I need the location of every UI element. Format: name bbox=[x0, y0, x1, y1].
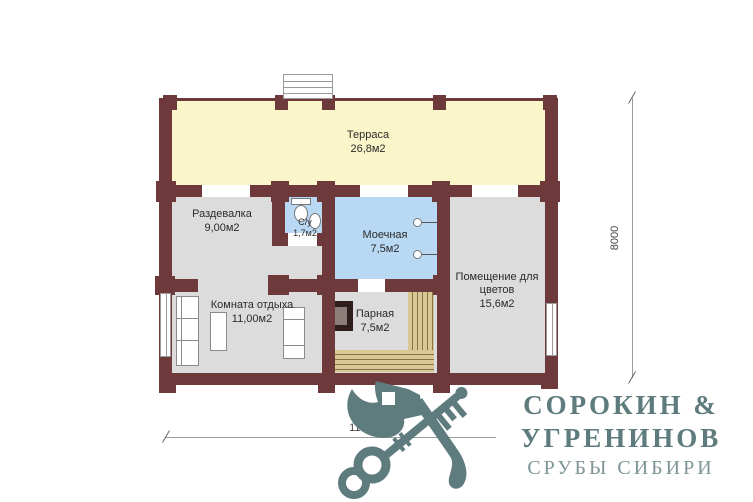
log-post bbox=[317, 181, 335, 202]
room-name: Моечная bbox=[335, 229, 435, 242]
door-steam-room bbox=[358, 279, 385, 292]
company-logo: СОРОКИН & УГРЕНИНОВ СРУБЫ СИБИРИ bbox=[496, 389, 746, 481]
sofa bbox=[176, 296, 199, 366]
room-name: Парная bbox=[335, 308, 415, 321]
floor-plan-page: Терраса 26,8м2 Раздевалка 9,00м2 С/у 1,7… bbox=[0, 0, 753, 502]
shower-arm-icon bbox=[421, 222, 437, 223]
opening-terrace-washing bbox=[360, 185, 408, 197]
log-post bbox=[540, 181, 560, 202]
room-area: 7,5м2 bbox=[335, 243, 435, 256]
room-label-flowers: Помещение для цветов 15,6м2 bbox=[447, 271, 547, 311]
room-area: 15,6м2 bbox=[447, 298, 547, 311]
room-area: 1,7м2 bbox=[284, 228, 326, 238]
brand-name-line2: УГРЕНИНОВ bbox=[496, 422, 746, 455]
toilet-tank-icon bbox=[291, 198, 311, 205]
room-name: Помещение для цветов bbox=[447, 271, 547, 297]
wall-terrace-top bbox=[159, 98, 558, 101]
log-post bbox=[159, 373, 176, 393]
sauna-bench-horizontal bbox=[335, 350, 434, 372]
room-label-rest: Комната отдыха 11,00м2 bbox=[202, 299, 302, 326]
window-right bbox=[546, 303, 557, 356]
log-post bbox=[433, 95, 446, 110]
dimension-line-right bbox=[632, 98, 633, 378]
room-label-terrace: Терраса 26,8м2 bbox=[318, 129, 418, 156]
room-label-steam: Парная 7,5м2 bbox=[335, 308, 415, 335]
room-label-changing: Раздевалка 9,00м2 bbox=[172, 208, 272, 235]
room-label-bathroom: С/у 1,7м2 bbox=[284, 217, 326, 238]
room-name: Комната отдыха bbox=[202, 299, 302, 312]
dimension-value-right: 8000 bbox=[609, 208, 621, 268]
room-name: С/у bbox=[284, 217, 326, 227]
log-post bbox=[156, 181, 176, 202]
log-post bbox=[271, 181, 289, 202]
brand-name-line1: СОРОКИН & bbox=[496, 389, 746, 422]
opening-terrace-flowers bbox=[472, 185, 518, 197]
window-left bbox=[160, 293, 171, 357]
shower-head-icon bbox=[413, 218, 422, 227]
log-post bbox=[268, 275, 289, 295]
log-post bbox=[163, 95, 177, 110]
room-area: 26,8м2 bbox=[318, 143, 418, 156]
log-post bbox=[543, 95, 557, 110]
log-post bbox=[317, 275, 335, 295]
room-area: 7,5м2 bbox=[335, 322, 415, 335]
opening-terrace-changing bbox=[202, 185, 250, 197]
log-post bbox=[432, 181, 450, 202]
room-area: 11,00м2 bbox=[202, 313, 302, 326]
terrace-steps bbox=[283, 74, 333, 99]
room-label-washing: Моечная 7,5м2 bbox=[335, 229, 435, 256]
room-name: Терраса bbox=[318, 129, 418, 142]
room-name: Раздевалка bbox=[172, 208, 272, 221]
room-area: 9,00м2 bbox=[172, 222, 272, 235]
brand-tagline: СРУБЫ СИБИРИ bbox=[496, 455, 746, 481]
